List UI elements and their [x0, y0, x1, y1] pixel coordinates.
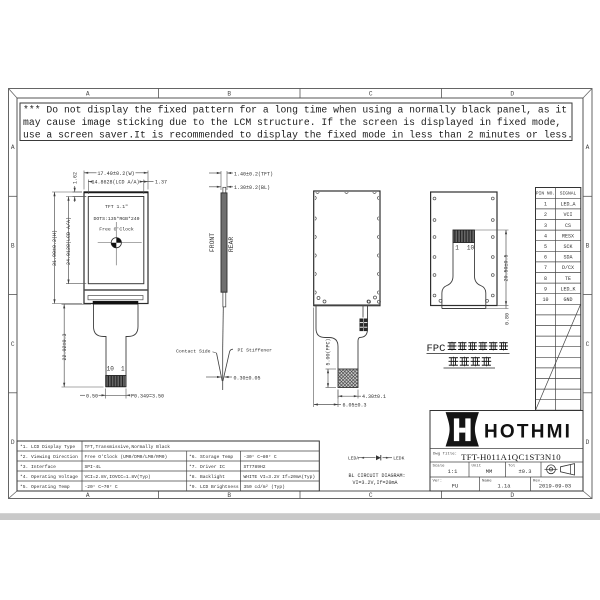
svg-text:2: 2 [544, 212, 547, 218]
svg-text:SDA: SDA [563, 255, 572, 261]
svg-text:Name: Name [482, 479, 492, 483]
svg-text:TFT 1.1": TFT 1.1" [105, 204, 128, 210]
svg-text:FRONT: FRONT [209, 233, 216, 252]
svg-text:B: B [227, 91, 231, 98]
svg-text:1.30±0.2(BL): 1.30±0.2(BL) [234, 185, 270, 191]
svg-text:A: A [11, 144, 15, 151]
svg-text:22.02±0.3: 22.02±0.3 [62, 333, 68, 360]
svg-text:REAR: REAR [228, 237, 235, 253]
svg-text:24.9128(LCD A/A): 24.9128(LCD A/A) [66, 217, 72, 265]
svg-text:1.37: 1.37 [155, 180, 167, 186]
svg-text:BL CIRCUIT DIAGRAM:: BL CIRCUIT DIAGRAM: [348, 473, 405, 479]
svg-text:Dwg Title:: Dwg Title: [433, 452, 457, 457]
svg-text:1:1: 1:1 [448, 469, 458, 475]
svg-text:VI=3.2V,If=20mA: VI=3.2V,If=20mA [352, 480, 397, 486]
svg-text:350 cd/m² (Typ): 350 cd/m² (Typ) [244, 484, 285, 490]
svg-text:D: D [11, 439, 15, 446]
svg-text:3: 3 [544, 223, 547, 229]
svg-text:C: C [369, 492, 373, 499]
svg-text:TFT,Transmissive,Normally Blac: TFT,Transmissive,Normally Black [85, 444, 171, 450]
svg-text:PI Stiffener: PI Stiffener [238, 348, 273, 354]
svg-text:1.1a: 1.1a [498, 484, 512, 490]
svg-text:1: 1 [455, 245, 459, 252]
svg-text:0.50: 0.50 [86, 393, 98, 399]
svg-text:MM: MM [486, 469, 492, 475]
svg-text:2019-09-03: 2019-09-03 [539, 484, 571, 490]
svg-text:1: 1 [121, 365, 125, 372]
svg-text:6: 6 [544, 255, 547, 261]
svg-text:1.62: 1.62 [72, 172, 78, 184]
svg-text:D: D [586, 439, 590, 446]
svg-text:HOTHMI: HOTHMI [484, 422, 572, 443]
svg-text:Unit: Unit [472, 463, 482, 468]
svg-text:4.30±0.1: 4.30±0.1 [362, 394, 386, 400]
svg-text:10: 10 [107, 365, 115, 372]
svg-text:20.50±0.5: 20.50±0.5 [504, 254, 510, 281]
svg-text:Ver:: Ver: [433, 478, 443, 483]
svg-text:LEDA: LEDA [348, 456, 359, 462]
svg-text:Free O'Clock (UM0/DM0/LM0/RM0): Free O'Clock (UM0/DM0/LM0/RM0) [85, 454, 168, 460]
svg-text:A: A [86, 91, 90, 98]
svg-text:0.30±0.05: 0.30±0.05 [234, 375, 261, 381]
svg-text:WHITE VI=3.2V If=20mA(Typ): WHITE VI=3.2V If=20mA(Typ) [244, 474, 316, 480]
svg-text:may cause image sticking due t: may cause image sticking due to the LCM … [23, 117, 561, 128]
svg-text:C: C [11, 341, 15, 348]
svg-text:7: 7 [544, 265, 547, 271]
svg-text:Contact Side: Contact Side [176, 348, 211, 354]
svg-text:A: A [586, 144, 590, 151]
svg-text:*2. Viewing Direction: *2. Viewing Direction [20, 454, 78, 460]
svg-text:SIGNAL: SIGNAL [560, 191, 577, 197]
svg-text:B: B [227, 492, 231, 499]
svg-text:TE: TE [565, 276, 571, 282]
svg-text:1: 1 [544, 202, 547, 208]
svg-text:use a screen saver.It is recom: use a screen saver.It is recommended to … [23, 129, 573, 140]
svg-text:1.40±0.2(TFT): 1.40±0.2(TFT) [234, 171, 273, 177]
svg-text:C: C [369, 91, 373, 98]
svg-text:Tol: Tol [508, 463, 516, 468]
svg-text:-20° C~70° C: -20° C~70° C [85, 484, 118, 490]
svg-text:0.80: 0.80 [504, 313, 510, 325]
svg-text:9: 9 [544, 286, 547, 292]
svg-text:FU: FU [452, 484, 458, 490]
svg-text:*4. Operating Voltage: *4. Operating Voltage [20, 474, 78, 480]
svg-text:PIN NO.: PIN NO. [536, 191, 555, 197]
svg-text:6.05±0.3: 6.05±0.3 [343, 403, 367, 409]
svg-text:14.8628(LCD A/A): 14.8628(LCD A/A) [91, 180, 139, 186]
svg-text:VCI=2.8V,IOVCC=1.8V(Typ): VCI=2.8V,IOVCC=1.8V(Typ) [85, 474, 151, 480]
svg-text:B: B [586, 243, 590, 250]
svg-text:C: C [586, 341, 590, 348]
svg-text:SCK: SCK [563, 244, 572, 250]
svg-text:*6. Storage Temp: *6. Storage Temp [189, 454, 233, 460]
svg-text:D: D [510, 492, 514, 499]
svg-text:17.40±0.2(W): 17.40±0.2(W) [97, 171, 134, 177]
svg-text:SPI-4L: SPI-4L [85, 464, 102, 470]
svg-text:*9. LCD Brightness: *9. LCD Brightness [189, 484, 239, 490]
svg-text:GND: GND [563, 297, 572, 303]
svg-text:P0.349=3.50: P0.349=3.50 [131, 393, 164, 399]
svg-text:±0.3: ±0.3 [519, 469, 532, 475]
svg-text:D/CX: D/CX [562, 265, 574, 271]
svg-text:*8. Backlight: *8. Backlight [189, 474, 225, 480]
svg-text:*1. LCD Display Type: *1. LCD Display Type [20, 444, 75, 450]
svg-text:VCI: VCI [563, 212, 572, 218]
svg-text:LEDK: LEDK [393, 456, 404, 462]
svg-text:CS: CS [565, 223, 571, 229]
svg-text:LED_A: LED_A [560, 202, 575, 208]
svg-text:Scale: Scale [433, 463, 446, 468]
svg-text:D: D [510, 91, 514, 98]
svg-text:*3. Interface: *3. Interface [20, 464, 56, 470]
svg-text:31.90±0.2(H): 31.90±0.2(H) [52, 230, 58, 266]
svg-text:10: 10 [467, 245, 475, 252]
svg-text:TFT-H011A1QC1ST3N10: TFT-H011A1QC1ST3N10 [461, 452, 561, 462]
svg-text:*7. Driver IC: *7. Driver IC [189, 464, 225, 470]
svg-text:5.00(FPC): 5.00(FPC) [326, 338, 332, 365]
svg-text:*5. Operating Temp: *5. Operating Temp [20, 484, 70, 490]
svg-text:10: 10 [542, 297, 548, 303]
svg-text:5: 5 [544, 244, 547, 250]
svg-text:RESX: RESX [562, 233, 574, 239]
svg-text:-30° C~80° C: -30° C~80° C [244, 454, 277, 460]
svg-text:ST7789H2: ST7789H2 [244, 464, 266, 470]
svg-text:8: 8 [544, 276, 547, 282]
svg-text:4: 4 [544, 233, 547, 239]
svg-text:*** Do not display the fixed p: *** Do not display the fixed pattern for… [23, 105, 567, 116]
svg-text:DOTS:135*RGB*240: DOTS:135*RGB*240 [93, 216, 139, 222]
svg-text:B: B [11, 243, 15, 250]
svg-text:A: A [86, 492, 90, 499]
svg-text:LED_K: LED_K [560, 286, 575, 292]
